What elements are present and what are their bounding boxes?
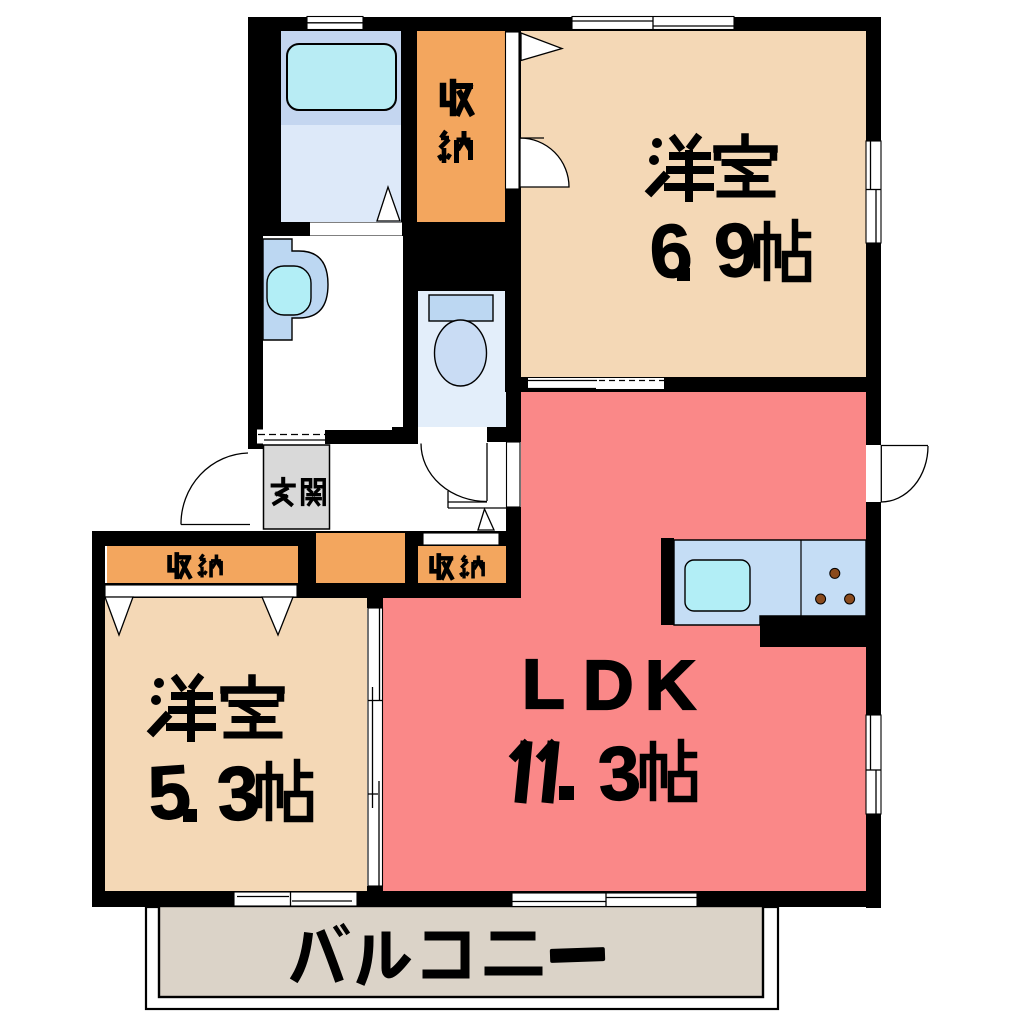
svg-text:D: D xyxy=(583,646,634,724)
svg-text:5: 5 xyxy=(145,749,193,837)
svg-text:3: 3 xyxy=(214,750,262,838)
svg-text:K: K xyxy=(645,646,696,724)
svg-text:L: L xyxy=(522,645,565,723)
svg-text:9: 9 xyxy=(711,207,761,295)
svg-text:6: 6 xyxy=(646,208,696,296)
svg-text:3: 3 xyxy=(595,730,643,818)
